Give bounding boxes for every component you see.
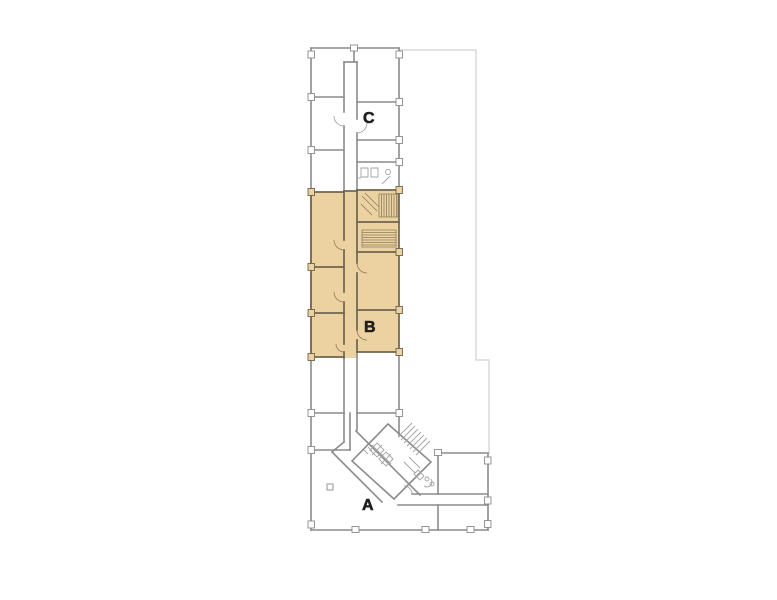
floorplate-outline: [399, 50, 489, 454]
floor-plan-svg: A B C: [0, 0, 777, 600]
section-label-b[interactable]: B: [364, 319, 376, 336]
stairwell-lower-icon: [398, 423, 430, 455]
section-label-a[interactable]: A: [362, 497, 374, 514]
section-b-highlight-region[interactable]: [311, 190, 399, 358]
floor-plan: A B C: [0, 0, 777, 600]
section-label-c[interactable]: C: [363, 110, 375, 127]
